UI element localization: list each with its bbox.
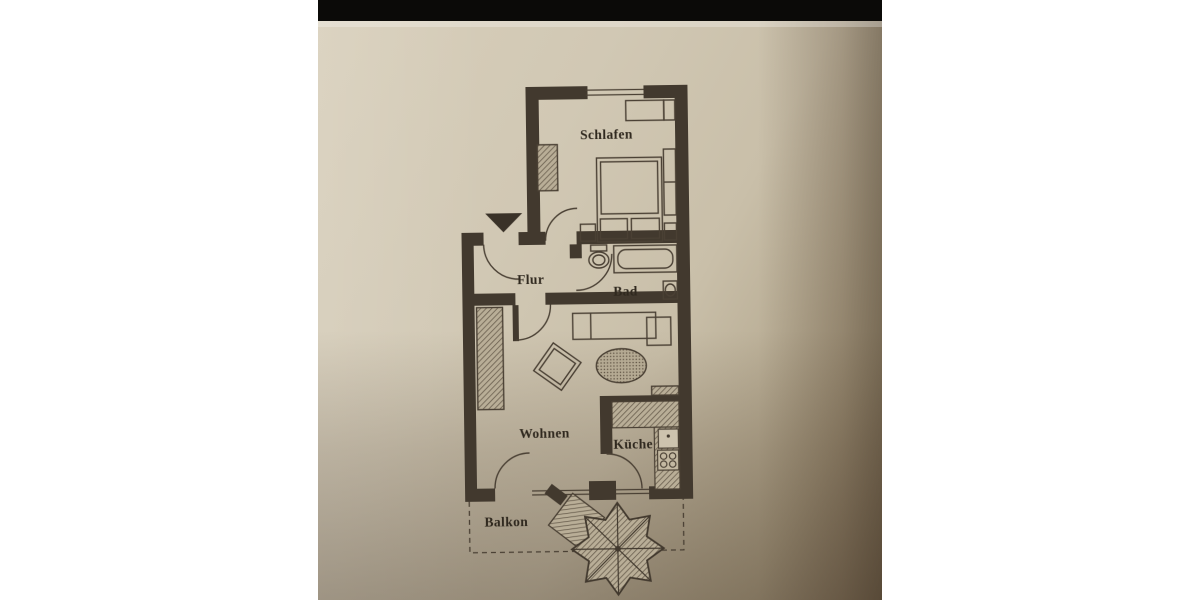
room-label-wohnen: Wohnen: [519, 425, 570, 441]
wall-kitchen-left: [600, 396, 613, 454]
living-door-swing: [515, 305, 550, 340]
bedroom-door-swing: [545, 208, 577, 240]
room-label-schlafen: Schlafen: [580, 127, 633, 143]
floor-plan-photo: Schlafen Flur Bad Wohnen Küche Balkon: [318, 0, 882, 600]
toilet-tank: [591, 245, 607, 251]
balcony-chair: [545, 484, 568, 506]
bath-door-swing: [576, 254, 612, 290]
entrance-door-swing: [484, 244, 519, 279]
balcony-door-leaf: [589, 481, 616, 500]
room-label-balkon: Balkon: [484, 514, 528, 530]
kitchen-counter-top: [612, 401, 679, 428]
wall-bottom-left: [465, 488, 495, 501]
room-label-flur: Flur: [517, 272, 544, 287]
room-label-bad: Bad: [613, 283, 638, 298]
kitchen-hob: [658, 450, 679, 470]
wall-left: [461, 233, 477, 502]
wall-hall-top-b: [518, 232, 545, 245]
bed: [596, 157, 662, 242]
wall-hall-bottom: [462, 293, 515, 306]
room-labels: Schlafen Flur Bad Wohnen Küche Balkon: [479, 126, 654, 529]
sideboard: [477, 307, 504, 409]
rug: [596, 348, 646, 383]
sofa: [573, 312, 656, 339]
parasol: [571, 502, 664, 595]
entrance-arrow-icon: [485, 213, 522, 233]
coffee-table: [534, 343, 581, 390]
dresser: [626, 100, 664, 121]
wardrobe: [537, 145, 558, 191]
bedroom-furniture: [537, 100, 677, 243]
wall-bath-stub: [570, 244, 582, 258]
room-label-kueche: Küche: [613, 436, 653, 452]
floor-plan-drawing: Schlafen Flur Bad Wohnen Küche Balkon: [318, 0, 882, 600]
low-shelf: [652, 386, 679, 395]
kitchen-sink: [658, 429, 678, 448]
wall-bath-bottom: [545, 291, 677, 305]
living-door-leaf: [512, 305, 519, 341]
living-furniture: [477, 305, 679, 410]
sofa-corner: [647, 317, 671, 345]
bedroom-window: [585, 89, 643, 90]
balcony-door-swing: [495, 453, 530, 488]
